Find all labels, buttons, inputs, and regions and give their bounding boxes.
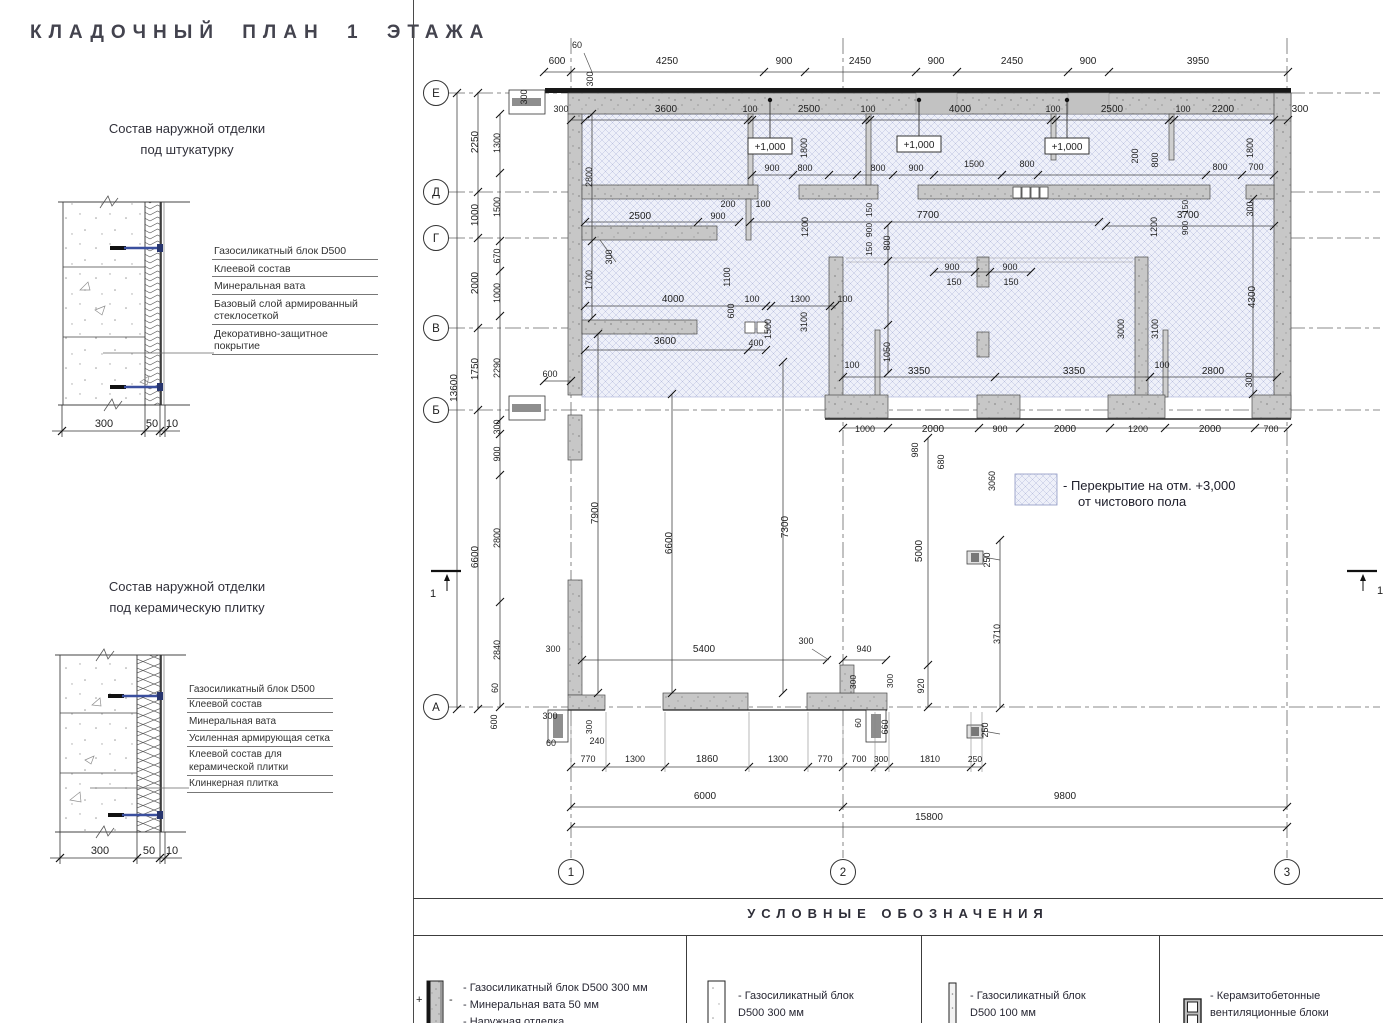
dim-label: 150 (864, 203, 874, 217)
dim-label: 3950 (1187, 56, 1210, 67)
dim-label: 600 (489, 714, 499, 729)
dim-label: 1300 (625, 754, 645, 764)
dim-label: 10 (166, 845, 178, 857)
dim-label: +1,000 (755, 142, 786, 153)
detail2-title: Состав наружной отделки под керамическую… (72, 576, 302, 618)
legend-item-text: - Газосиликатный блокD500 100 мм (970, 988, 1086, 1022)
dim-label: 300 (553, 104, 568, 114)
dim-label: 3060 (987, 471, 997, 491)
detail1-title: Состав наружной отделки под штукатурку (72, 118, 302, 160)
dim-label: 700 (1248, 162, 1263, 172)
dim-label: 2000 (1054, 424, 1077, 435)
dim-label: 2 (840, 867, 846, 879)
dim-label: 2450 (849, 56, 872, 67)
dim-label: 7900 (590, 501, 601, 524)
dim-label: 800 (1212, 162, 1227, 172)
dim-label: 2500 (1101, 104, 1124, 115)
dim-label: 2000 (922, 424, 945, 435)
dim-label: 660 (880, 719, 890, 734)
legend-item-exterior-wall: + - - Газосиликатный блок D500 300 мм- М… (413, 936, 686, 1023)
dim-label: 250 (980, 722, 990, 737)
dim-label: 980 (910, 442, 920, 457)
block300-symbol-icon (707, 980, 727, 1023)
dim-label: 5400 (693, 644, 716, 655)
dim-label: 300 (885, 674, 895, 688)
dim-label: 2800 (492, 528, 502, 548)
dim-label: 1800 (1245, 138, 1255, 158)
dim-label: 4000 (949, 104, 972, 115)
dim-label: 3100 (799, 312, 809, 332)
floor-plan: 6004250900245090024509003950603003600100… (413, 0, 1383, 1023)
dim-label: В (432, 323, 440, 335)
dim-label: 900 (776, 56, 793, 67)
legend-item-text: - Газосиликатный блок D500 300 мм- Минер… (463, 980, 648, 1023)
dim-label: 300 (798, 636, 813, 646)
dim-label: 1750 (470, 357, 481, 380)
dim-label: 3350 (908, 366, 931, 377)
dim-label: 50 (146, 418, 158, 430)
dim-label: 7300 (780, 515, 791, 538)
dim-label: 3 (1284, 867, 1290, 879)
exterior-wall-symbol-icon (426, 980, 448, 1023)
dim-label: 1200 (1149, 217, 1159, 237)
dim-label: 900 (1002, 262, 1017, 272)
dim-label: 600 (542, 369, 557, 379)
dim-label: 150 (946, 277, 961, 287)
dim-label: 2800 (1202, 366, 1225, 377)
dim-label: 1300 (768, 754, 788, 764)
dim-label: 100 (1045, 104, 1060, 114)
legend-item-block-100: - Газосиликатный блокD500 100 мм (921, 936, 1159, 1023)
dim-label: 2000 (1199, 424, 1222, 435)
dim-label: 1 (568, 867, 574, 879)
dim-label: 4250 (656, 56, 679, 67)
dim-label: 1000 (855, 424, 875, 434)
dim-label: 1 (430, 588, 436, 600)
dim-label: 1500 (763, 319, 773, 339)
dim-label: 300 (545, 644, 560, 654)
dim-label: 3350 (1063, 366, 1086, 377)
dim-label: 6600 (664, 531, 675, 554)
dim-label: 100 (860, 104, 875, 114)
dim-label: 2500 (629, 211, 652, 222)
dim-label: 900 (864, 223, 874, 237)
dim-label: 700 (851, 754, 866, 764)
dim-label: 1300 (790, 294, 810, 304)
dim-label: 2290 (492, 358, 502, 378)
dim-label: 940 (856, 644, 871, 654)
floor-note-line2: от чистового пола (1078, 494, 1187, 509)
floor-note-line1: - Перекрытие на отм. +3,000 (1063, 478, 1236, 493)
dim-label: 300 (1292, 104, 1309, 115)
dim-label: 3000 (1116, 319, 1126, 339)
dim-label: 2840 (492, 640, 502, 660)
dim-label: 300 (1245, 201, 1255, 216)
dim-label: 300 (585, 71, 595, 86)
dim-label: 100 (844, 360, 859, 370)
dim-label: 300 (584, 720, 594, 734)
dim-label: 600 (726, 303, 736, 318)
dim-label: 800 (797, 163, 812, 173)
dim-label: Б (432, 405, 440, 417)
page-title: КЛАДОЧНЫЙ ПЛАН 1 ЭТАЖА (30, 22, 410, 44)
vent-block-symbol-icon (1183, 998, 1203, 1023)
dim-label: 240 (589, 736, 604, 746)
block100-symbol-icon (948, 982, 960, 1023)
dim-label: 6000 (694, 791, 717, 802)
dim-label: 300 (604, 249, 614, 264)
dim-label: 2000 (470, 271, 481, 294)
dim-label: 400 (748, 338, 763, 348)
dim-label: 10 (166, 418, 178, 430)
dim-label: 3700 (1177, 210, 1200, 221)
dim-label: 920 (916, 678, 926, 693)
detail1-layer-labels: Газосиликатный блок D500 Клеевой состав … (212, 245, 378, 355)
dim-label: 300 (519, 89, 529, 104)
drawing-sheet: КЛАДОЧНЫЙ ПЛАН 1 ЭТАЖА Состав наружной о… (0, 0, 1383, 1023)
dim-label: 900 (944, 262, 959, 272)
dim-label: 7700 (917, 210, 940, 221)
dim-label: 770 (817, 754, 832, 764)
dim-label: 900 (908, 163, 923, 173)
dim-label: 1810 (920, 754, 940, 764)
column-icon (967, 551, 983, 738)
dim-label: 1860 (696, 754, 719, 765)
dim-label: 1700 (584, 270, 594, 290)
dim-label: 2500 (798, 104, 821, 115)
dim-label: 5000 (914, 539, 925, 562)
floor-note: - Перекрытие на отм. +3,000 от чистового… (1015, 474, 1236, 509)
dim-label: 100 (744, 294, 759, 304)
dim-label: 150 (1003, 277, 1018, 287)
dim-label: 2800 (584, 167, 594, 187)
legend-item-text: - Газосиликатный блокD500 300 мм (738, 988, 854, 1022)
dim-label: 200 (1130, 148, 1140, 163)
dim-label: 300 (492, 419, 502, 434)
detail2-layer-labels: Газосиликатный блок D500 Клеевой состав … (187, 684, 333, 793)
dim-label: 300 (542, 711, 557, 721)
dim-label: 100 (742, 104, 757, 114)
dim-label: А (432, 702, 440, 714)
dim-label: 60 (572, 40, 582, 50)
dim-label: +1,000 (904, 140, 935, 151)
dim-label: Г (433, 233, 440, 245)
dim-label: 150 (864, 242, 874, 256)
dim-label: 1500 (964, 159, 984, 169)
dim-label: Д (432, 187, 440, 199)
dim-label: 300 (848, 675, 858, 689)
dim-label: 60 (546, 738, 556, 748)
dim-label: +1,000 (1052, 142, 1083, 153)
legend-item-block-300: - Газосиликатный блокD500 300 мм (686, 936, 921, 1023)
dim-label: 60 (490, 683, 500, 693)
dim-label: Е (432, 88, 440, 100)
dim-label: 100 (755, 199, 770, 209)
dim-label: 670 (492, 248, 502, 263)
minus-mark: - (449, 994, 453, 1006)
dim-label: 900 (1080, 56, 1097, 67)
dim-label: 1 (1377, 585, 1383, 597)
dim-label: 200 (720, 199, 735, 209)
dim-label: 15800 (915, 812, 943, 823)
dim-label: 2450 (1001, 56, 1024, 67)
dim-label: 1200 (1128, 424, 1148, 434)
dim-label: 3100 (1150, 319, 1160, 339)
dim-label: 800 (1019, 159, 1034, 169)
plus-mark: + (416, 994, 422, 1006)
dim-label: 900 (764, 163, 779, 173)
legend-top-rule (413, 898, 1383, 899)
dim-label: 900 (492, 446, 502, 461)
dim-label: 900 (710, 211, 725, 221)
dim-label: 1000 (492, 283, 502, 303)
legend-title: УСЛОВНЫЕ ОБОЗНАЧЕНИЯ (413, 906, 1383, 921)
dim-label: 100 (837, 294, 852, 304)
dim-label: 2200 (1212, 104, 1235, 115)
dim-label: 1800 (799, 138, 809, 158)
dim-label: 800 (882, 235, 892, 250)
dim-label: 60 (853, 718, 863, 728)
dim-label: 680 (936, 454, 946, 469)
dim-label: 900 (992, 424, 1007, 434)
legend-item-vent-blocks: - Керамзитобетонныевентиляционные блоки (1159, 936, 1383, 1023)
dim-label: 100 (1175, 104, 1190, 114)
dim-label: 6600 (470, 545, 481, 568)
dim-label: 250 (982, 552, 992, 567)
dim-label: 770 (580, 754, 595, 764)
dim-label: 2250 (470, 130, 481, 153)
dim-label: 300 (91, 845, 109, 857)
dim-label: 4000 (662, 294, 685, 305)
dim-label: 3600 (654, 336, 677, 347)
dim-label: 250 (968, 754, 982, 764)
legend-item-text: - Керамзитобетонныевентиляционные блоки (1210, 988, 1329, 1022)
dim-label: 1200 (800, 217, 810, 237)
dim-label: 4300 (1247, 285, 1258, 308)
dim-label: 900 (928, 56, 945, 67)
dim-label: 1300 (492, 133, 502, 153)
dim-label: 800 (870, 163, 885, 173)
dim-label: 600 (549, 56, 566, 67)
dim-label: 13600 (449, 374, 460, 402)
dim-label: 3710 (992, 624, 1002, 644)
dim-label: 800 (1150, 152, 1160, 167)
dim-label: 300 (1244, 372, 1254, 387)
dim-label: 1500 (492, 197, 502, 217)
dim-label: 50 (143, 845, 155, 857)
dim-label: 700 (1263, 424, 1278, 434)
dim-label: 1100 (722, 267, 732, 286)
dim-label: 300 (95, 418, 113, 430)
dim-label: 900 (1180, 221, 1190, 235)
dim-label: 9800 (1054, 791, 1077, 802)
dim-label: 300 (874, 754, 888, 764)
dim-label: 100 (1154, 360, 1169, 370)
dim-label: 1050 (882, 342, 892, 362)
dim-label: 1000 (470, 203, 481, 226)
dim-label: 3600 (655, 104, 678, 115)
